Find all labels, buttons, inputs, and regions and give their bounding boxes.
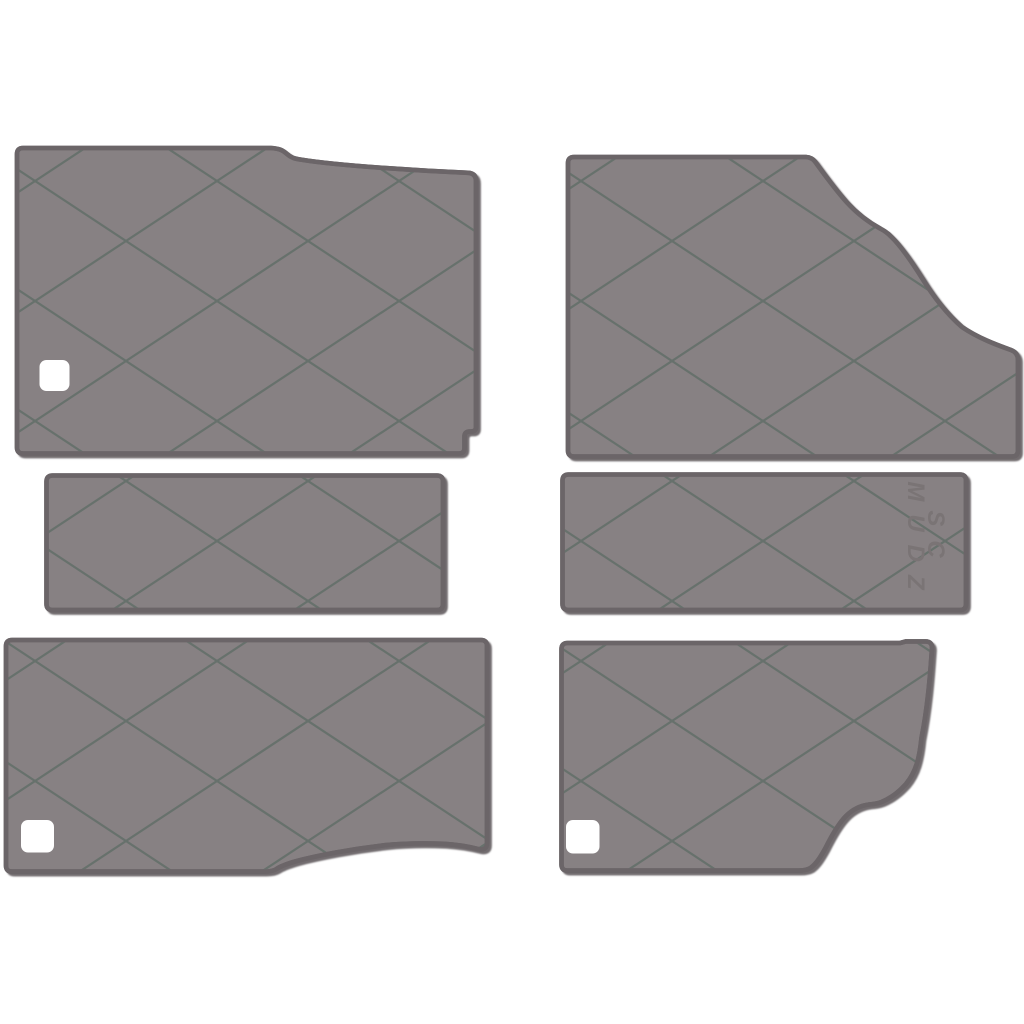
svg-text:MUDZ: MUDZ xyxy=(902,481,929,602)
